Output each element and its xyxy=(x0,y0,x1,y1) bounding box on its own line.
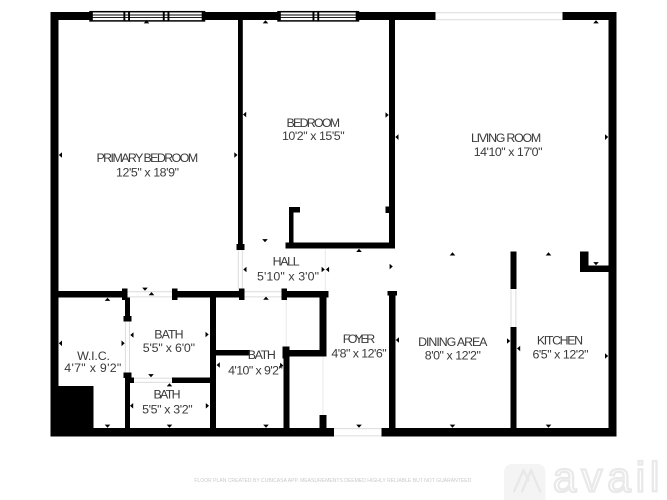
svg-text:5'5" x 3'2": 5'5" x 3'2" xyxy=(142,403,193,417)
svg-text:BATH: BATH xyxy=(153,388,180,402)
svg-text:8'0" x 12'2": 8'0" x 12'2" xyxy=(425,349,481,363)
svg-text:HALL: HALL xyxy=(273,255,300,269)
svg-text:14'10" x 17'0": 14'10" x 17'0" xyxy=(474,145,543,159)
svg-text:4'8" x 12'6": 4'8" x 12'6" xyxy=(331,346,386,360)
svg-text:FLOOR PLAN CREATED BY CUBICASA: FLOOR PLAN CREATED BY CUBICASA APP. MEAS… xyxy=(194,478,471,484)
svg-text:KITCHEN: KITCHEN xyxy=(537,334,583,348)
svg-text:BEDROOM: BEDROOM xyxy=(287,116,341,130)
svg-text:6'5" x 12'2": 6'5" x 12'2" xyxy=(532,347,588,361)
svg-text:10'2" x 15'5": 10'2" x 15'5" xyxy=(282,129,345,143)
svg-text:4'7" x 9'2": 4'7" x 9'2" xyxy=(64,361,121,375)
svg-text:PRIMARY BEDROOM: PRIMARY BEDROOM xyxy=(96,151,198,165)
svg-text:DINING AREA: DINING AREA xyxy=(418,335,488,349)
svg-text:BATH: BATH xyxy=(154,327,183,341)
svg-text:5'10" x 3'0": 5'10" x 3'0" xyxy=(257,270,319,284)
svg-text:LIVING ROOM: LIVING ROOM xyxy=(471,131,541,145)
svg-text:5'5" x 6'0": 5'5" x 6'0" xyxy=(143,341,195,355)
svg-text:FOYER: FOYER xyxy=(343,332,375,346)
svg-text:12'5" x 18'9": 12'5" x 18'9" xyxy=(116,166,179,180)
svg-text:avail: avail xyxy=(553,454,664,500)
svg-text:4'10" x 9'2": 4'10" x 9'2" xyxy=(228,364,283,378)
svg-text:BATH: BATH xyxy=(248,348,276,362)
